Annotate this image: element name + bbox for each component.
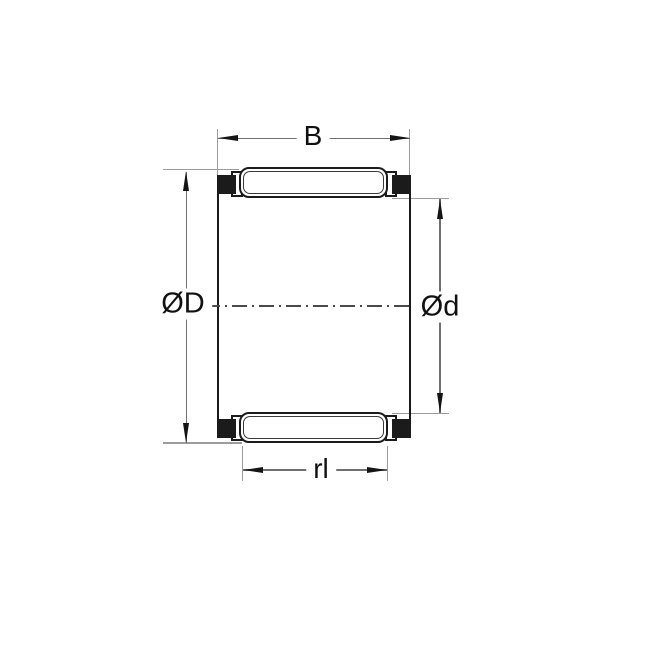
arrow-right-icon: [367, 467, 387, 473]
arrow-down-icon: [437, 393, 443, 413]
arrow-right-icon: [390, 135, 410, 141]
outer-diameter-extension-line-bottom: [163, 442, 242, 443]
needle-roller-top: [239, 167, 388, 198]
arrow-left-icon: [218, 135, 238, 141]
roller-length-extension-line-left: [242, 446, 243, 481]
arrow-down-icon: [183, 423, 189, 443]
bearing-cross-section-diagram: B ØD Ød rl: [0, 0, 670, 670]
inner-diameter-dimension-label: Ød: [414, 292, 467, 323]
roller-length-extension-line-right: [387, 446, 388, 481]
center-axis-dash-dot-line: [205, 305, 421, 307]
cage-rim-block-bottom-left: [217, 419, 236, 438]
needle-roller-bottom: [239, 412, 388, 443]
needle-roller-inner-outline: [243, 171, 384, 194]
width-dimension-label: B: [297, 121, 330, 151]
outer-diameter-extension-line-top: [163, 169, 239, 170]
arrow-up-icon: [437, 199, 443, 219]
cage-rim-block-bottom-right: [392, 419, 411, 438]
outer-diameter-dimension-label: ØD: [154, 289, 212, 320]
arrow-up-icon: [183, 171, 189, 191]
needle-roller-inner-outline: [243, 416, 384, 439]
roller-length-dimension-label: rl: [306, 454, 336, 484]
arrow-left-icon: [243, 467, 263, 473]
cage-rim-block-top-right: [392, 175, 411, 194]
cage-rim-block-top-left: [217, 175, 236, 194]
